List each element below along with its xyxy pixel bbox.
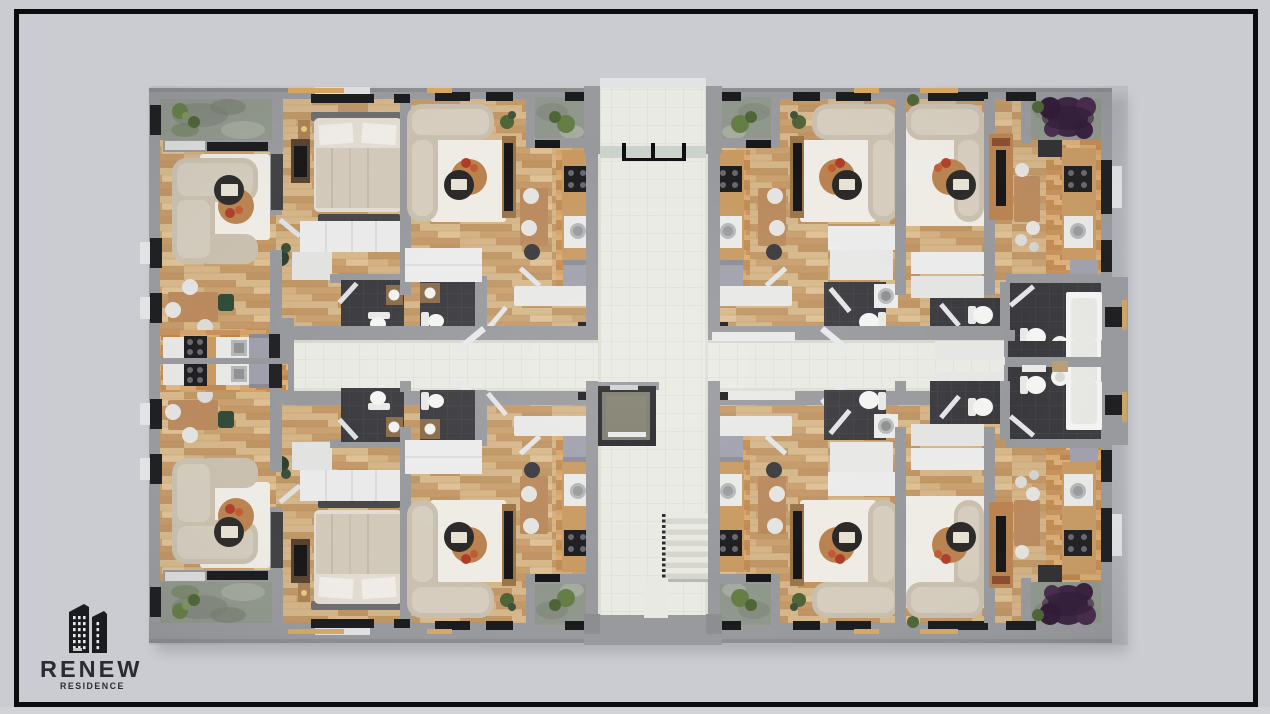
svg-text:RESIDENCE: RESIDENCE: [60, 681, 125, 691]
svg-text:RENEW: RENEW: [40, 656, 142, 682]
